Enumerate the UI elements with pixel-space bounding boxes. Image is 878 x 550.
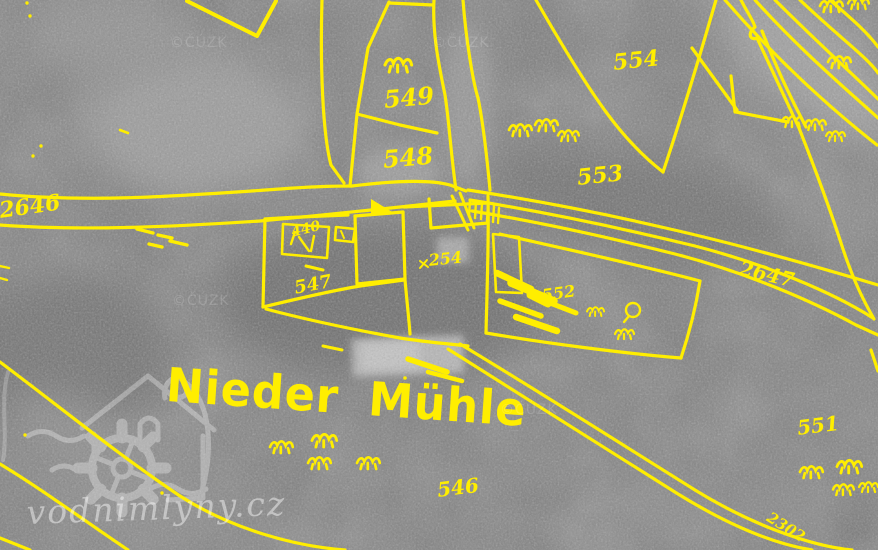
parcel-label-551: 551 — [796, 413, 840, 438]
parcel-label-549: 549 — [383, 84, 435, 112]
parcel-label-546: 546 — [436, 475, 480, 500]
copyright-watermark: ©ČÚZK — [172, 294, 230, 308]
parcel-label-554: 554 — [612, 47, 660, 74]
copyright-watermark: ©ČÚZK — [432, 36, 490, 50]
map-canvas[interactable]: 2646 549 548 554 553 2647 440 254 547 55… — [0, 0, 878, 550]
tree-icon — [624, 303, 640, 322]
parcel-label-254: 254 — [428, 250, 463, 269]
copyright-watermark: ©ČÚZK — [500, 403, 558, 417]
copyright-watermark: ©ČÚZK — [170, 36, 228, 50]
parcel-label-552: 552 — [541, 283, 576, 303]
parcel-label-553: 553 — [576, 162, 624, 189]
parcel-label-548: 548 — [382, 144, 434, 172]
site-watermark: vodnimlyny.cz — [26, 487, 287, 529]
